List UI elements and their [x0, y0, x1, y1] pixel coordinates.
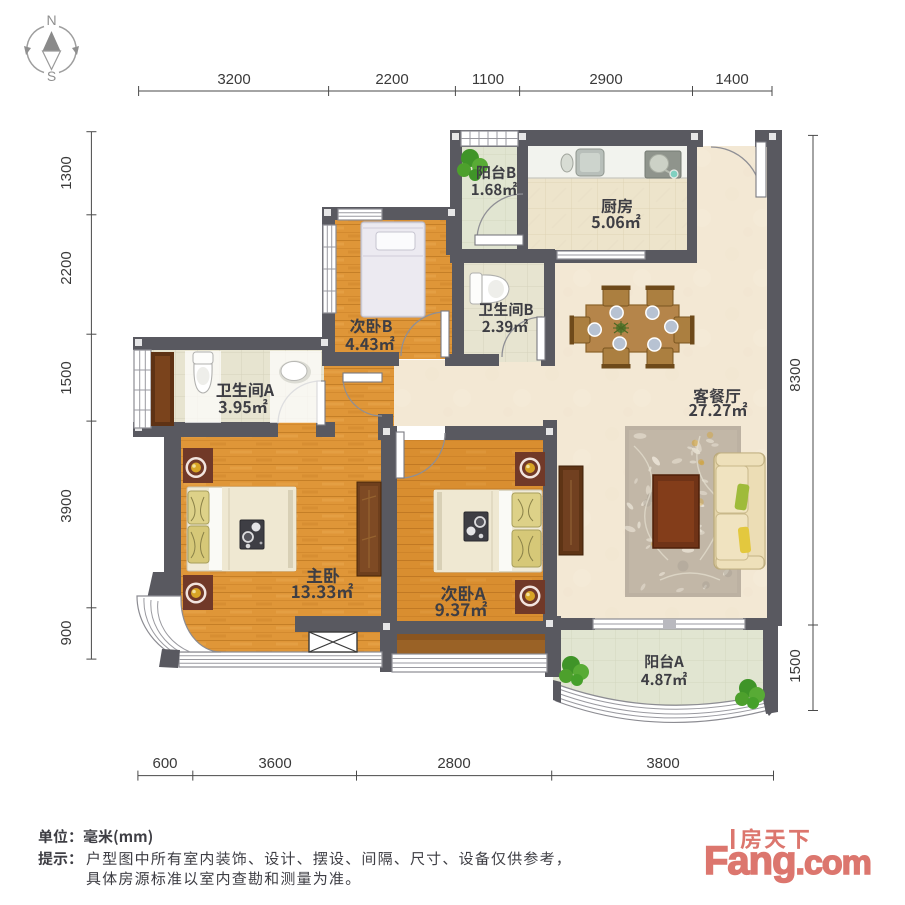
svg-text:2200: 2200 [58, 251, 75, 284]
svg-text:1300: 1300 [58, 156, 75, 189]
svg-text:S: S [47, 68, 56, 84]
svg-text:Fang.com: Fang.com [704, 839, 871, 883]
svg-text:1400: 1400 [715, 71, 748, 88]
svg-text:3600: 3600 [258, 755, 291, 772]
svg-text:3900: 3900 [58, 489, 75, 522]
svg-text:N: N [46, 12, 56, 28]
svg-text:2800: 2800 [437, 755, 470, 772]
svg-text:600: 600 [152, 755, 177, 772]
svg-text:900: 900 [58, 620, 75, 645]
svg-text:3200: 3200 [217, 71, 250, 88]
svg-text:1500: 1500 [787, 649, 804, 682]
svg-text:8300: 8300 [787, 358, 804, 391]
svg-text:3800: 3800 [646, 755, 679, 772]
svg-text:1500: 1500 [58, 361, 75, 394]
svg-text:2200: 2200 [375, 71, 408, 88]
svg-text:1100: 1100 [472, 71, 504, 88]
svg-text:2900: 2900 [589, 71, 622, 88]
